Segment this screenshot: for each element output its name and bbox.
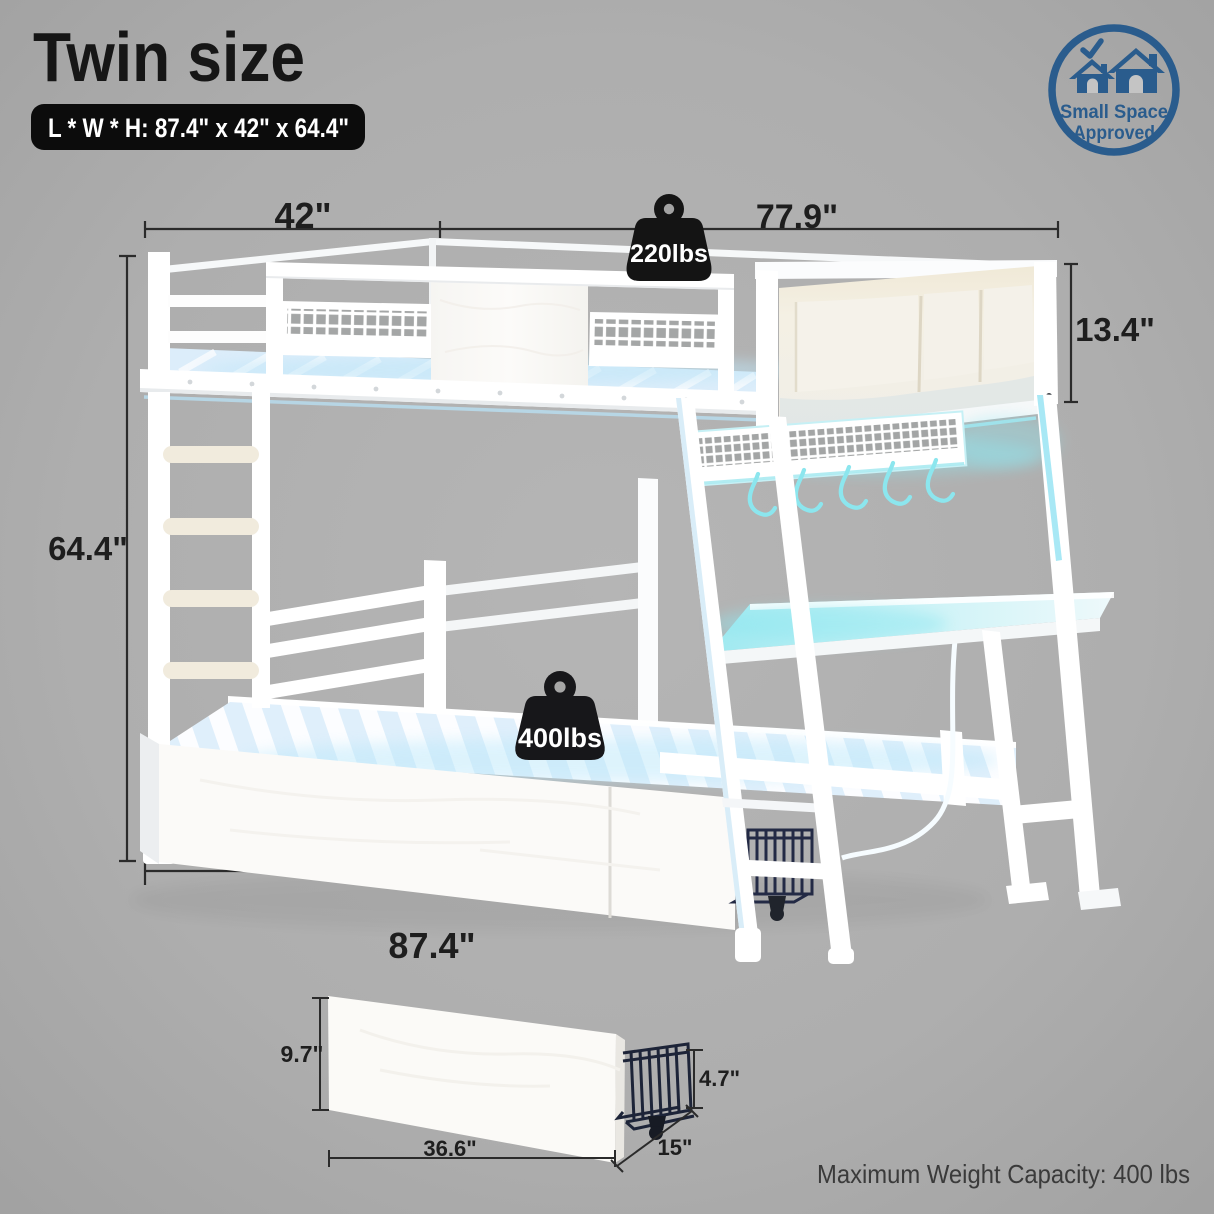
svg-text:13.4": 13.4": [1075, 311, 1155, 348]
svg-text:220lbs: 220lbs: [630, 240, 708, 268]
svg-text:42": 42": [274, 195, 331, 236]
svg-text:9.7": 9.7": [281, 1041, 324, 1067]
svg-text:Approved: Approved: [1073, 122, 1155, 144]
svg-text:15": 15": [658, 1135, 693, 1160]
svg-text:Maximum Weight Capacity: 400 l: Maximum Weight Capacity: 400 lbs: [817, 1159, 1190, 1189]
svg-text:77.9": 77.9": [756, 198, 838, 236]
svg-text:36.6": 36.6": [423, 1136, 476, 1161]
svg-text:64.4": 64.4": [48, 530, 128, 567]
svg-text:L * W * H: 87.4" x 42" x 64.4": L * W * H: 87.4" x 42" x 64.4": [48, 113, 349, 143]
svg-text:400lbs: 400lbs: [518, 723, 602, 753]
svg-text:4.7": 4.7": [699, 1066, 740, 1091]
svg-text:Small Space: Small Space: [1060, 101, 1168, 123]
svg-text:Twin size: Twin size: [33, 18, 305, 96]
svg-text:87.4": 87.4": [388, 925, 475, 966]
